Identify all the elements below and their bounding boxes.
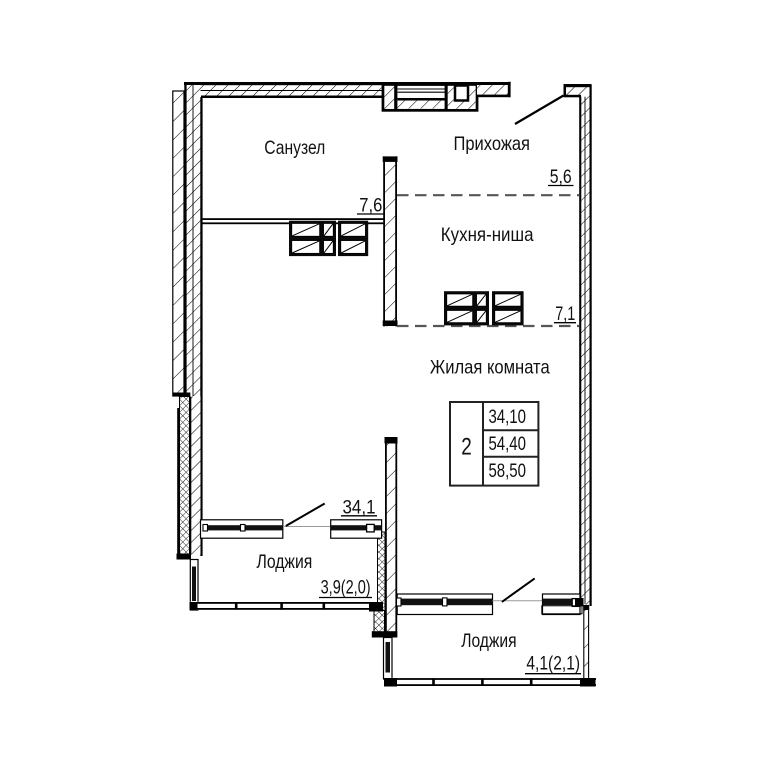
- svg-text:54,40: 54,40: [488, 434, 526, 455]
- svg-text:Прихожая: Прихожая: [454, 133, 531, 155]
- svg-text:Лоджия: Лоджия: [461, 630, 516, 652]
- svg-text:4,1(2,1): 4,1(2,1): [526, 653, 580, 675]
- svg-text:2: 2: [461, 433, 472, 460]
- svg-text:34,10: 34,10: [488, 407, 526, 428]
- svg-text:Лоджия: Лоджия: [257, 551, 313, 573]
- svg-text:5,6: 5,6: [550, 166, 572, 188]
- svg-text:7,1: 7,1: [555, 303, 575, 325]
- svg-text:7,6: 7,6: [359, 195, 382, 217]
- svg-text:Санузел: Санузел: [264, 137, 325, 159]
- svg-text:Жилая комната: Жилая комната: [430, 357, 550, 379]
- svg-text:58,50: 58,50: [488, 461, 526, 482]
- svg-text:Кухня-ниша: Кухня-ниша: [441, 224, 534, 246]
- svg-text:3,9(2,0): 3,9(2,0): [321, 577, 371, 599]
